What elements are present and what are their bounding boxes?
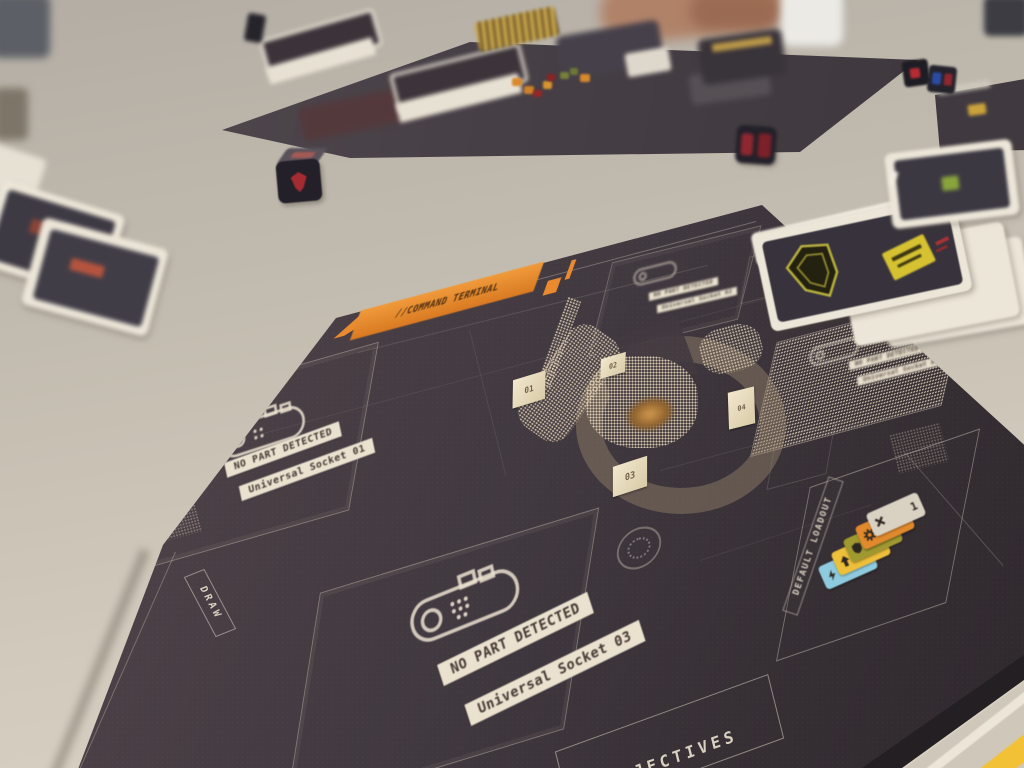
loadout-value: 2 <box>885 525 896 540</box>
mech-art-ring-break <box>592 316 697 403</box>
controller-icon <box>402 552 525 653</box>
shield-emblem-icon <box>775 230 856 313</box>
loadout-slot-shield: 2 <box>842 518 903 564</box>
token-orange <box>580 74 590 82</box>
controller-icon <box>215 394 308 465</box>
red-pip <box>943 73 952 86</box>
controller-icon <box>808 331 860 369</box>
blurred-object-topleft <box>0 0 50 58</box>
label-text-line <box>891 244 922 262</box>
token-red <box>547 74 555 81</box>
socket-marker-04: 04 <box>728 386 755 429</box>
circuit-block <box>146 492 203 543</box>
controller-icon <box>632 256 677 288</box>
loadout-value: 2 <box>897 512 908 527</box>
socket-right-name: Universal Socket 04 <box>857 355 945 386</box>
blueprint-line <box>700 504 871 561</box>
blurred-object-topright <box>984 0 1024 36</box>
socket-left-status: NO PART DETECTED <box>224 421 342 478</box>
die-top-marks <box>290 152 316 158</box>
green-icon-card <box>884 138 1020 229</box>
socket-marker-03: 03 <box>613 456 647 498</box>
loadout-frame <box>776 428 980 661</box>
loadout-slot-lightning: 3 <box>817 545 878 591</box>
mech-art-body <box>586 356 698 448</box>
socket-top-status: NO PART DETECTED <box>649 277 719 301</box>
socket-bottom-name: Universal Socket 03 <box>464 620 645 726</box>
photo-boardgame-table: NO PART DETECTED Universal Socket 01 NO … <box>0 0 1024 768</box>
objectives-label: OBJECTIVES <box>555 674 784 768</box>
circuit-block <box>889 422 949 473</box>
blueprint-line <box>469 330 506 476</box>
arrow-up-icon <box>838 553 853 568</box>
mech-art-mast <box>537 296 582 387</box>
blurred-object-left <box>0 88 28 140</box>
socket-marker-01: 01 <box>512 370 545 408</box>
blue-pip <box>931 72 941 85</box>
loadout-value: 3 <box>860 552 871 567</box>
lightning-icon <box>825 567 840 582</box>
card-yellow-label <box>882 234 936 281</box>
circuit-squares <box>766 422 835 490</box>
board-edge-line <box>69 552 176 768</box>
small-die-right <box>927 65 958 95</box>
mech-art-ring <box>576 336 786 514</box>
card-red-text <box>936 245 948 253</box>
socket-panel-left <box>147 342 379 569</box>
small-die-left <box>901 58 930 87</box>
red-pip <box>909 67 920 78</box>
mech-art-arm <box>510 316 627 449</box>
white-cup <box>781 0 843 46</box>
blueprint-line <box>252 291 793 437</box>
socket-top-name: Universal Socket 02 <box>657 287 738 314</box>
green-icon <box>941 175 960 191</box>
draw-label: DRAW <box>184 569 236 637</box>
x-icon <box>873 514 888 529</box>
socket-marker-02: 02 <box>600 352 626 379</box>
loadout-title: DEFAULT LOADOUT <box>782 476 843 615</box>
port-inner <box>627 535 650 562</box>
mech-art-pod <box>695 319 767 379</box>
token-green <box>570 68 578 75</box>
socket-panel-top <box>589 225 762 357</box>
red-face <box>757 133 772 158</box>
loadout-value: 1 <box>908 499 919 514</box>
token-red <box>533 90 542 97</box>
token-orange <box>543 81 552 89</box>
token-green <box>560 72 569 79</box>
socket-left-name: Universal Socket 01 <box>239 438 375 501</box>
red-emblem-icon <box>275 158 322 204</box>
red-face <box>740 133 754 156</box>
mech-art-port <box>617 521 661 574</box>
gear-icon <box>862 526 878 542</box>
loadout-slot-gear: 2 <box>854 505 915 551</box>
shield-icon <box>850 540 865 555</box>
socket-right-status: NO PART DETECTED <box>849 343 925 371</box>
player-hand <box>690 0 780 30</box>
blueprint-line <box>660 418 853 471</box>
black-die-red-faces <box>735 125 778 166</box>
token-orange <box>512 78 522 86</box>
socket-bottom-status: NO PART DETECTED <box>437 592 594 686</box>
loadout-slot-arrow: 2 <box>830 531 891 577</box>
board-edge-line <box>904 452 1003 566</box>
card-red-text <box>935 236 949 246</box>
socket-panel-bottom <box>285 507 599 768</box>
mech-art-glow <box>623 392 678 435</box>
loadout-value: 2 <box>873 538 884 553</box>
loadout-slot-x: 1 <box>865 492 926 538</box>
black-die-red-emblem <box>275 158 322 204</box>
